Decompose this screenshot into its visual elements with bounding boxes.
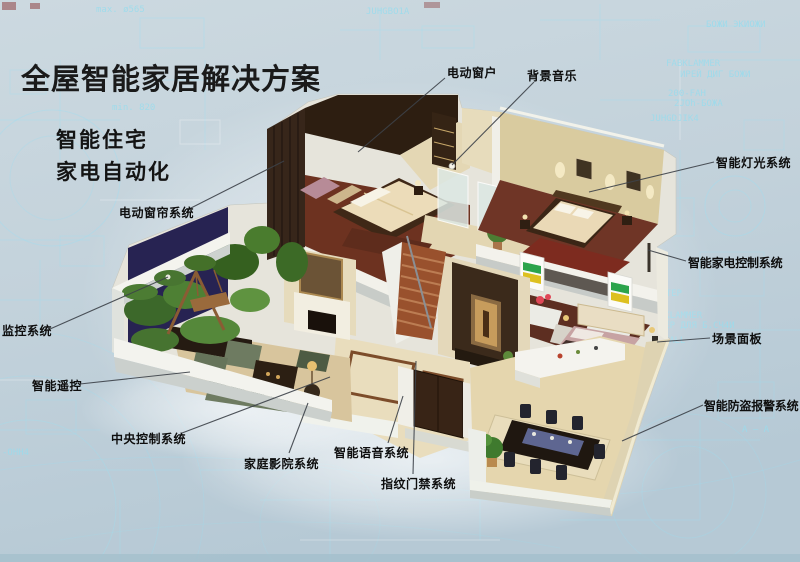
label-background-music: 背景音乐	[527, 67, 577, 84]
leader-line-scene-panel	[657, 338, 710, 342]
leader-line-smart-lighting	[589, 162, 714, 192]
leader-line-monitoring	[50, 277, 168, 329]
label-smart-remote: 智能遥控	[32, 377, 82, 394]
leader-line-home-theater	[289, 403, 308, 453]
label-electric-window: 电动窗户	[447, 64, 497, 81]
label-scene-panel: 场景面板	[712, 330, 762, 347]
label-fingerprint-access: 指纹门禁系统	[381, 475, 456, 492]
label-smart-lighting: 智能灯光系统	[716, 154, 791, 171]
leader-line-fingerprint	[413, 361, 416, 474]
leader-line-background-music	[452, 82, 534, 165]
leader-line-electric-window	[358, 78, 445, 152]
label-monitoring: 监控系统	[2, 322, 52, 339]
leader-line-appliance-control	[648, 250, 686, 261]
label-burglar-alarm: 智能防盗报警系统	[704, 397, 798, 414]
label-central-control: 中央控制系统	[111, 430, 186, 447]
page-title: 全屋智能家居解决方案	[21, 56, 321, 98]
leader-line-smart-remote	[80, 372, 190, 384]
leader-line-electric-curtain	[187, 161, 284, 210]
label-appliance-control: 智能家电控制系统	[688, 254, 782, 271]
smart-home-poster: max. ø565 min. 820 БОЖИ ЭКИОЖИ FABKLAMME…	[0, 0, 800, 562]
leader-line-burglar-alarm	[622, 405, 703, 441]
subtitle-appliance-automation: 家电自动化	[56, 156, 171, 186]
label-home-theater: 家庭影院系统	[244, 455, 319, 472]
label-smart-voice: 智能语音系统	[334, 444, 409, 461]
subtitle-smart-residence: 智能住宅	[56, 124, 148, 154]
leader-line-smart-voice	[388, 396, 403, 443]
label-electric-curtain: 电动窗帘系统	[119, 204, 194, 221]
